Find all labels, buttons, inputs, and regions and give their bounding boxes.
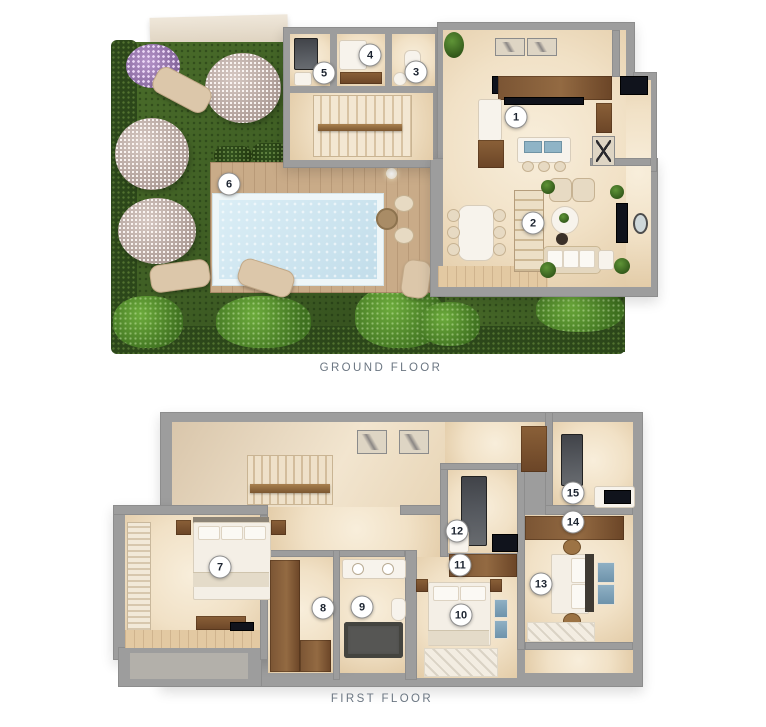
partition bbox=[612, 30, 620, 77]
counter-room4 bbox=[340, 72, 382, 84]
blossom-tree bbox=[115, 118, 189, 190]
staircase-upper bbox=[247, 455, 333, 505]
sink-unit bbox=[478, 99, 502, 141]
console-table bbox=[616, 203, 628, 243]
media-shelf-unit bbox=[514, 190, 544, 272]
area-rug bbox=[424, 648, 498, 677]
first-floor-label: FIRST FLOOR bbox=[331, 693, 433, 705]
shrub bbox=[420, 302, 480, 346]
potted-plant bbox=[540, 262, 556, 278]
blossom-tree bbox=[205, 53, 281, 123]
wall-art bbox=[357, 430, 387, 454]
potted-plant bbox=[614, 258, 630, 274]
pantry-door bbox=[596, 103, 612, 133]
window-blinds bbox=[127, 522, 151, 634]
table-plant bbox=[559, 213, 569, 223]
landing-south bbox=[525, 650, 633, 673]
dining-chair bbox=[447, 226, 460, 239]
potted-plant bbox=[610, 185, 624, 199]
partition bbox=[440, 463, 448, 557]
nightstand bbox=[271, 520, 286, 535]
bedroom7-wood-floor bbox=[125, 630, 260, 648]
vanity-sink bbox=[352, 563, 364, 575]
wardrobe bbox=[270, 560, 300, 672]
bed-pillow bbox=[460, 586, 486, 601]
refrigerator bbox=[620, 76, 648, 95]
floorplan-canvas: 123456 789101112131415 GROUND FLOOR FIRS… bbox=[0, 0, 766, 727]
potted-plant bbox=[444, 32, 464, 58]
lamp-table bbox=[598, 250, 614, 270]
kitchen-cabinet bbox=[478, 140, 504, 168]
bed-throw bbox=[193, 572, 269, 587]
vanity-counter bbox=[604, 490, 631, 504]
wall-art-blue bbox=[494, 599, 508, 618]
wall-art bbox=[527, 38, 557, 56]
oval-mirror bbox=[633, 213, 648, 234]
wall-art-blue bbox=[597, 562, 615, 583]
sofa-cushion bbox=[579, 250, 595, 268]
deck-chair bbox=[394, 227, 414, 244]
toilet bbox=[391, 598, 406, 621]
washer-room4 bbox=[339, 40, 367, 70]
deck-round-table bbox=[376, 208, 398, 230]
island-drawer bbox=[544, 141, 562, 153]
shrub bbox=[216, 296, 311, 348]
bar-stool bbox=[522, 161, 534, 172]
vanity bbox=[449, 530, 469, 553]
wardrobe bbox=[449, 554, 517, 577]
sink-room5 bbox=[294, 72, 312, 86]
tv bbox=[230, 622, 254, 631]
side-table bbox=[556, 233, 568, 245]
stair-railing-upper bbox=[250, 484, 330, 493]
wardrobe-14 bbox=[525, 516, 624, 540]
nightstand bbox=[416, 579, 428, 592]
armchair bbox=[572, 178, 595, 202]
bed-pillow bbox=[433, 586, 459, 601]
wardrobe-return bbox=[300, 640, 331, 672]
bar-stool bbox=[538, 161, 550, 172]
bed-throw bbox=[428, 630, 489, 645]
dining-chair bbox=[493, 226, 506, 239]
toilet-room3 bbox=[404, 50, 421, 71]
vanity-sink bbox=[382, 563, 394, 575]
skylight bbox=[492, 534, 518, 552]
dining-chair bbox=[447, 209, 460, 222]
shrub bbox=[113, 296, 183, 348]
bar-stool bbox=[554, 161, 566, 172]
cooktop bbox=[504, 97, 584, 105]
dining-chair bbox=[493, 243, 506, 256]
bed-pillow bbox=[244, 526, 266, 540]
island-drawer bbox=[524, 141, 542, 153]
bed-pillow bbox=[198, 526, 220, 540]
wall-art-blue bbox=[597, 584, 615, 605]
shower bbox=[561, 434, 583, 486]
partition bbox=[400, 505, 445, 515]
wall-face bbox=[130, 653, 248, 679]
entry-hall bbox=[626, 80, 651, 287]
bathtub bbox=[344, 622, 403, 658]
potted-plant bbox=[541, 180, 555, 194]
hall-wardrobe bbox=[521, 426, 547, 472]
deck-light bbox=[386, 168, 397, 179]
partition bbox=[517, 463, 525, 650]
partition bbox=[405, 550, 417, 680]
wall-art bbox=[495, 38, 525, 56]
partition bbox=[113, 505, 268, 515]
bed-pillow bbox=[571, 558, 586, 583]
bed-headboard bbox=[585, 554, 594, 612]
dining-table bbox=[458, 205, 494, 261]
blossom-tree bbox=[118, 198, 196, 264]
sink-room3 bbox=[393, 72, 407, 86]
ground-floor-label: GROUND FLOOR bbox=[320, 362, 443, 374]
nightstand bbox=[176, 520, 191, 535]
bed-pillow bbox=[571, 584, 586, 609]
dining-chair bbox=[447, 243, 460, 256]
area-rug bbox=[527, 622, 595, 642]
wall-art-blue bbox=[494, 620, 508, 639]
stair-railing bbox=[318, 124, 402, 131]
bed-pillow bbox=[221, 526, 243, 540]
shower-room5 bbox=[294, 38, 318, 70]
sofa-cushion bbox=[563, 250, 579, 268]
wall-art bbox=[399, 430, 429, 454]
round-stool bbox=[563, 539, 581, 555]
deck-chair bbox=[394, 195, 414, 212]
partition bbox=[440, 463, 525, 470]
dining-chair bbox=[493, 209, 506, 222]
partition bbox=[333, 550, 340, 680]
partition bbox=[525, 642, 633, 650]
hourglass-art bbox=[592, 136, 615, 166]
nightstand bbox=[490, 579, 502, 592]
